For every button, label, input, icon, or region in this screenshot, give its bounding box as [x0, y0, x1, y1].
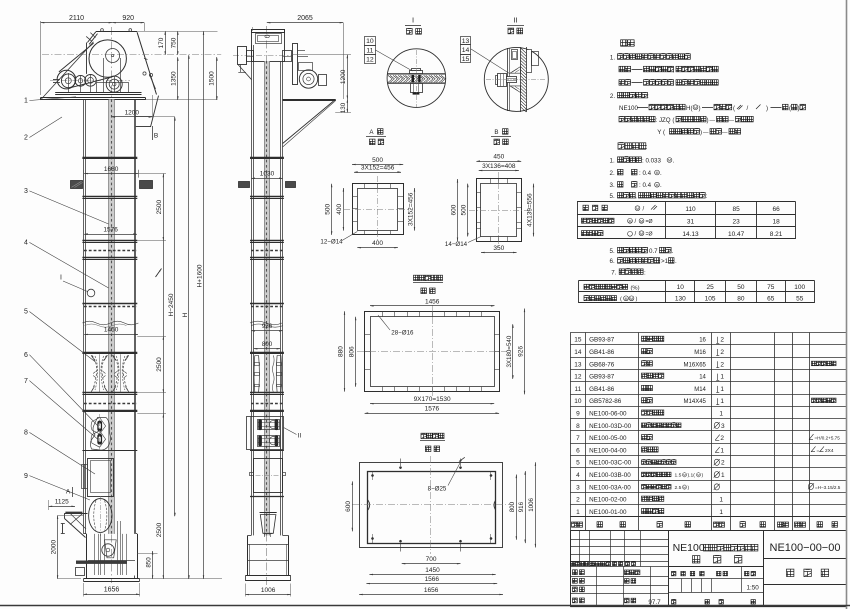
svg-text:600: 600: [450, 204, 457, 215]
svg-text:): ): [636, 297, 638, 303]
svg-text:85: 85: [732, 206, 740, 213]
svg-text:NE100: NE100: [673, 542, 705, 554]
svg-text:920: 920: [122, 15, 134, 22]
svg-text:5: 5: [24, 309, 28, 316]
svg-text:(: (: [620, 297, 622, 303]
svg-text:850: 850: [145, 557, 152, 568]
svg-text:4X139=556: 4X139=556: [526, 193, 533, 227]
svg-text:1: 1: [720, 447, 724, 454]
svg-text:65: 65: [767, 295, 775, 302]
svg-text:2500: 2500: [156, 199, 163, 214]
svg-text:1: 1: [720, 398, 724, 405]
svg-text:NE100−00−00: NE100−00−00: [770, 542, 841, 554]
svg-text:M: M: [640, 232, 643, 236]
svg-text:): ): [699, 105, 701, 112]
svg-text:8: 8: [576, 423, 580, 430]
svg-text:3: 3: [721, 423, 725, 430]
svg-text:: 0.033: : 0.033: [642, 157, 661, 164]
svg-text:4: 4: [24, 240, 28, 247]
svg-text:/: /: [747, 105, 749, 112]
svg-text:130: 130: [675, 295, 686, 302]
svg-text:M: M: [629, 219, 632, 223]
svg-text:1: 1: [576, 509, 580, 516]
svg-text:GB5782-86: GB5782-86: [589, 398, 622, 405]
svg-text:M: M: [636, 207, 639, 211]
svg-text:M14: M14: [694, 387, 706, 393]
svg-text:2: 2: [720, 435, 724, 442]
svg-text:2500: 2500: [156, 522, 163, 537]
svg-text:): ): [798, 105, 800, 112]
svg-text:1350: 1350: [171, 71, 178, 86]
svg-text:18: 18: [772, 219, 780, 226]
svg-text:25: 25: [706, 284, 714, 291]
svg-text:(%): (%): [631, 285, 640, 291]
svg-text:400: 400: [336, 203, 343, 214]
svg-text:80: 80: [737, 295, 745, 302]
svg-text::: :: [646, 144, 648, 151]
svg-text:1006: 1006: [528, 497, 535, 511]
svg-text:M: M: [630, 297, 633, 301]
svg-text:): ): [766, 105, 768, 112]
svg-text:700: 700: [426, 556, 437, 563]
svg-text:II: II: [513, 16, 517, 25]
svg-text:600: 600: [345, 501, 352, 512]
svg-text:.: .: [673, 157, 675, 164]
svg-text:5: 5: [576, 460, 580, 467]
svg-text:=H−3.15/2.5: =H−3.15/2.5: [815, 485, 841, 490]
svg-text:GB93-87: GB93-87: [589, 374, 615, 381]
svg-text:1: 1: [720, 386, 724, 393]
svg-text:: 0.4: : 0.4: [639, 182, 652, 189]
svg-text:NE100-01-00: NE100-01-00: [589, 509, 627, 516]
svg-text:M14X45: M14X45: [684, 399, 707, 405]
svg-text:8: 8: [24, 430, 28, 437]
svg-text:M: M: [668, 159, 671, 163]
svg-text:.: .: [660, 170, 662, 177]
svg-text:500: 500: [461, 204, 468, 215]
svg-text:10: 10: [574, 398, 582, 405]
svg-text:H(: H(: [686, 105, 693, 112]
svg-text:15: 15: [574, 337, 582, 344]
svg-text:M: M: [625, 297, 628, 301]
svg-text:M: M: [640, 219, 643, 223]
svg-text:2.: 2.: [610, 170, 615, 177]
svg-text:14: 14: [699, 375, 706, 381]
svg-text:1.: 1.: [610, 157, 615, 164]
svg-text:M16X65: M16X65: [684, 362, 707, 368]
svg-text:1200: 1200: [340, 69, 347, 84]
svg-text:M16: M16: [694, 350, 706, 356]
svg-text:.: .: [675, 258, 677, 265]
svg-text:1: 1: [719, 497, 723, 504]
svg-text:31: 31: [687, 219, 695, 226]
svg-text:350: 350: [493, 245, 504, 252]
svg-text:Y (: Y (: [657, 129, 666, 136]
svg-text:450: 450: [493, 154, 504, 161]
svg-text:GB41-86: GB41-86: [589, 349, 615, 356]
svg-text:916: 916: [518, 501, 525, 512]
svg-text:16: 16: [699, 338, 706, 344]
svg-text:2: 2: [721, 460, 725, 467]
svg-text:1566: 1566: [425, 576, 440, 583]
svg-text:>1: >1: [661, 258, 669, 265]
svg-text:8−Ø25: 8−Ø25: [428, 486, 447, 493]
svg-text::: :: [644, 269, 646, 276]
svg-text:8.21: 8.21: [770, 231, 783, 238]
svg-text:M: M: [694, 106, 697, 110]
svg-text:170: 170: [158, 37, 165, 48]
svg-text:NE100-06-00: NE100-06-00: [589, 411, 627, 418]
svg-text:=H/0.2+5.75: =H/0.2+5.75: [815, 436, 841, 441]
svg-text:12−Ø14: 12−Ø14: [320, 239, 343, 246]
svg-text:1.5: 1.5: [675, 473, 682, 479]
svg-text:6: 6: [576, 447, 580, 454]
svg-text:28−Ø16: 28−Ø16: [391, 330, 414, 337]
svg-text:1: 1: [719, 411, 723, 418]
svg-text:): ): [700, 129, 702, 136]
svg-text:926: 926: [517, 346, 524, 357]
svg-text:1450: 1450: [104, 327, 119, 334]
svg-text:M: M: [656, 183, 659, 187]
svg-text:1: 1: [24, 98, 28, 105]
svg-text:.: .: [660, 182, 662, 189]
svg-text:2: 2: [720, 361, 724, 368]
svg-text:GB41-86: GB41-86: [589, 386, 615, 393]
svg-text:2110: 2110: [69, 15, 84, 22]
svg-text:7: 7: [576, 435, 580, 442]
svg-text:I: I: [60, 275, 62, 282]
svg-text:1450: 1450: [425, 567, 440, 574]
svg-text:105: 105: [705, 295, 716, 302]
svg-text:1500: 1500: [208, 71, 215, 86]
svg-text:GB68-76: GB68-76: [589, 361, 615, 368]
svg-text:800: 800: [509, 501, 516, 512]
svg-text:=Ø: =Ø: [646, 231, 653, 237]
svg-text:14.13: 14.13: [682, 231, 699, 238]
svg-text:2500: 2500: [156, 357, 163, 372]
svg-text:7.: 7.: [611, 269, 616, 276]
svg-text:500: 500: [325, 203, 332, 214]
svg-text:GB93-87: GB93-87: [589, 337, 615, 344]
svg-text:.: .: [672, 248, 674, 255]
svg-text:9: 9: [24, 473, 28, 480]
svg-text:A: A: [66, 489, 71, 496]
svg-text:3X152=456: 3X152=456: [361, 165, 395, 172]
svg-text:=Ø: =Ø: [646, 219, 653, 225]
svg-text:130: 130: [340, 102, 347, 113]
svg-text:1456: 1456: [425, 298, 440, 305]
svg-text:1: 1: [719, 509, 723, 516]
svg-text:=: =: [817, 449, 820, 454]
svg-text:3X136=408: 3X136=408: [482, 163, 516, 170]
svg-text:14−Ø14: 14−Ø14: [445, 241, 468, 248]
svg-text:3: 3: [576, 484, 580, 491]
svg-text:: 0.4: : 0.4: [639, 170, 652, 177]
svg-text:12: 12: [366, 57, 374, 64]
svg-text:).1(: ).1(: [688, 473, 696, 479]
svg-text:2065: 2065: [297, 15, 313, 22]
svg-text:2: 2: [576, 497, 580, 504]
svg-text:5.: 5.: [610, 193, 615, 200]
svg-text:3X180=540: 3X180=540: [506, 335, 513, 367]
svg-text:1.: 1.: [610, 54, 615, 61]
svg-text:B: B: [154, 133, 158, 140]
svg-text:400: 400: [372, 240, 383, 247]
svg-text:NE100-03A-00: NE100-03A-00: [589, 484, 631, 491]
svg-text:55: 55: [796, 295, 804, 302]
svg-text:110: 110: [685, 206, 696, 213]
svg-text:2.: 2.: [610, 93, 615, 100]
svg-text:1: 1: [720, 374, 724, 381]
svg-text:750: 750: [171, 37, 178, 48]
svg-text:2: 2: [720, 349, 724, 356]
svg-text:9: 9: [576, 411, 580, 418]
svg-text:5.: 5.: [610, 248, 615, 255]
svg-text:9X170=1530: 9X170=1530: [414, 396, 451, 403]
svg-text:0.7: 0.7: [649, 248, 658, 255]
svg-text:—: —: [722, 130, 728, 136]
svg-text:2.5: 2.5: [675, 485, 682, 491]
svg-text:926: 926: [262, 323, 273, 330]
svg-text:500: 500: [372, 157, 383, 164]
svg-text:1656: 1656: [424, 587, 439, 594]
svg-text:1: 1: [721, 472, 725, 479]
svg-text:23: 23: [732, 219, 740, 226]
svg-text:1125: 1125: [55, 499, 69, 506]
svg-text::: :: [706, 193, 708, 200]
svg-text:6: 6: [24, 352, 28, 359]
svg-text:12: 12: [574, 374, 582, 381]
svg-text:—: —: [710, 118, 716, 124]
svg-text:M: M: [656, 171, 659, 175]
svg-text:2: 2: [720, 337, 724, 344]
svg-text:14: 14: [574, 349, 582, 356]
svg-text:: JZQ (: : JZQ (: [656, 117, 676, 124]
svg-text:806: 806: [349, 346, 356, 357]
svg-text:B: B: [494, 129, 498, 136]
svg-text:1656: 1656: [104, 587, 120, 594]
svg-text:11: 11: [366, 47, 373, 54]
svg-text::: :: [634, 41, 636, 48]
svg-text:2000: 2000: [50, 539, 57, 554]
svg-text:100: 100: [794, 284, 805, 291]
svg-text:NE100-02-00: NE100-02-00: [589, 497, 627, 504]
svg-text:NE100-05-00: NE100-05-00: [589, 435, 627, 442]
svg-text:11: 11: [575, 386, 582, 393]
svg-text:50: 50: [737, 284, 745, 291]
svg-text:880: 880: [337, 346, 344, 357]
svg-text:3X152=456: 3X152=456: [407, 192, 414, 226]
svg-text:14: 14: [462, 47, 470, 54]
svg-text:1680: 1680: [104, 166, 119, 173]
svg-text:3.: 3.: [610, 182, 615, 189]
svg-text:15: 15: [462, 56, 470, 63]
svg-text:66: 66: [772, 206, 780, 213]
svg-text:H: H: [182, 312, 189, 317]
svg-text:1200: 1200: [125, 109, 140, 116]
svg-text:1:50: 1:50: [746, 585, 759, 592]
svg-text:II: II: [298, 433, 302, 440]
svg-text:7: 7: [24, 378, 28, 385]
svg-text:10: 10: [366, 38, 374, 45]
svg-text:2X4: 2X4: [825, 448, 834, 454]
svg-text:1576: 1576: [103, 226, 118, 233]
svg-text:NE100-03B-00: NE100-03B-00: [589, 472, 631, 479]
svg-text:10: 10: [677, 284, 685, 291]
svg-text:NE100-03D-00: NE100-03D-00: [589, 423, 632, 430]
svg-text:3: 3: [24, 188, 28, 195]
svg-text:13: 13: [462, 38, 470, 45]
svg-text:800: 800: [262, 341, 273, 348]
svg-text:H−2450: H−2450: [168, 293, 175, 316]
svg-text:10.47: 10.47: [728, 231, 745, 238]
svg-text:H+1600: H+1600: [196, 264, 203, 287]
svg-text:6.: 6.: [610, 258, 615, 265]
svg-text:I: I: [412, 16, 414, 25]
svg-text:—: —: [729, 118, 735, 124]
svg-text:13: 13: [574, 361, 582, 368]
svg-text:1576: 1576: [425, 406, 440, 413]
svg-text:2: 2: [24, 135, 28, 142]
svg-text:1030: 1030: [260, 171, 275, 178]
svg-text:4: 4: [576, 472, 580, 479]
svg-text:75: 75: [767, 284, 775, 291]
svg-text:NE100-04-00: NE100-04-00: [589, 447, 627, 454]
svg-text:NE100-03C-00: NE100-03C-00: [589, 460, 632, 467]
svg-text:NE100: NE100: [619, 105, 638, 112]
svg-text:): ): [707, 117, 709, 124]
svg-text:1006: 1006: [261, 587, 276, 594]
svg-text:—: —: [703, 130, 709, 136]
